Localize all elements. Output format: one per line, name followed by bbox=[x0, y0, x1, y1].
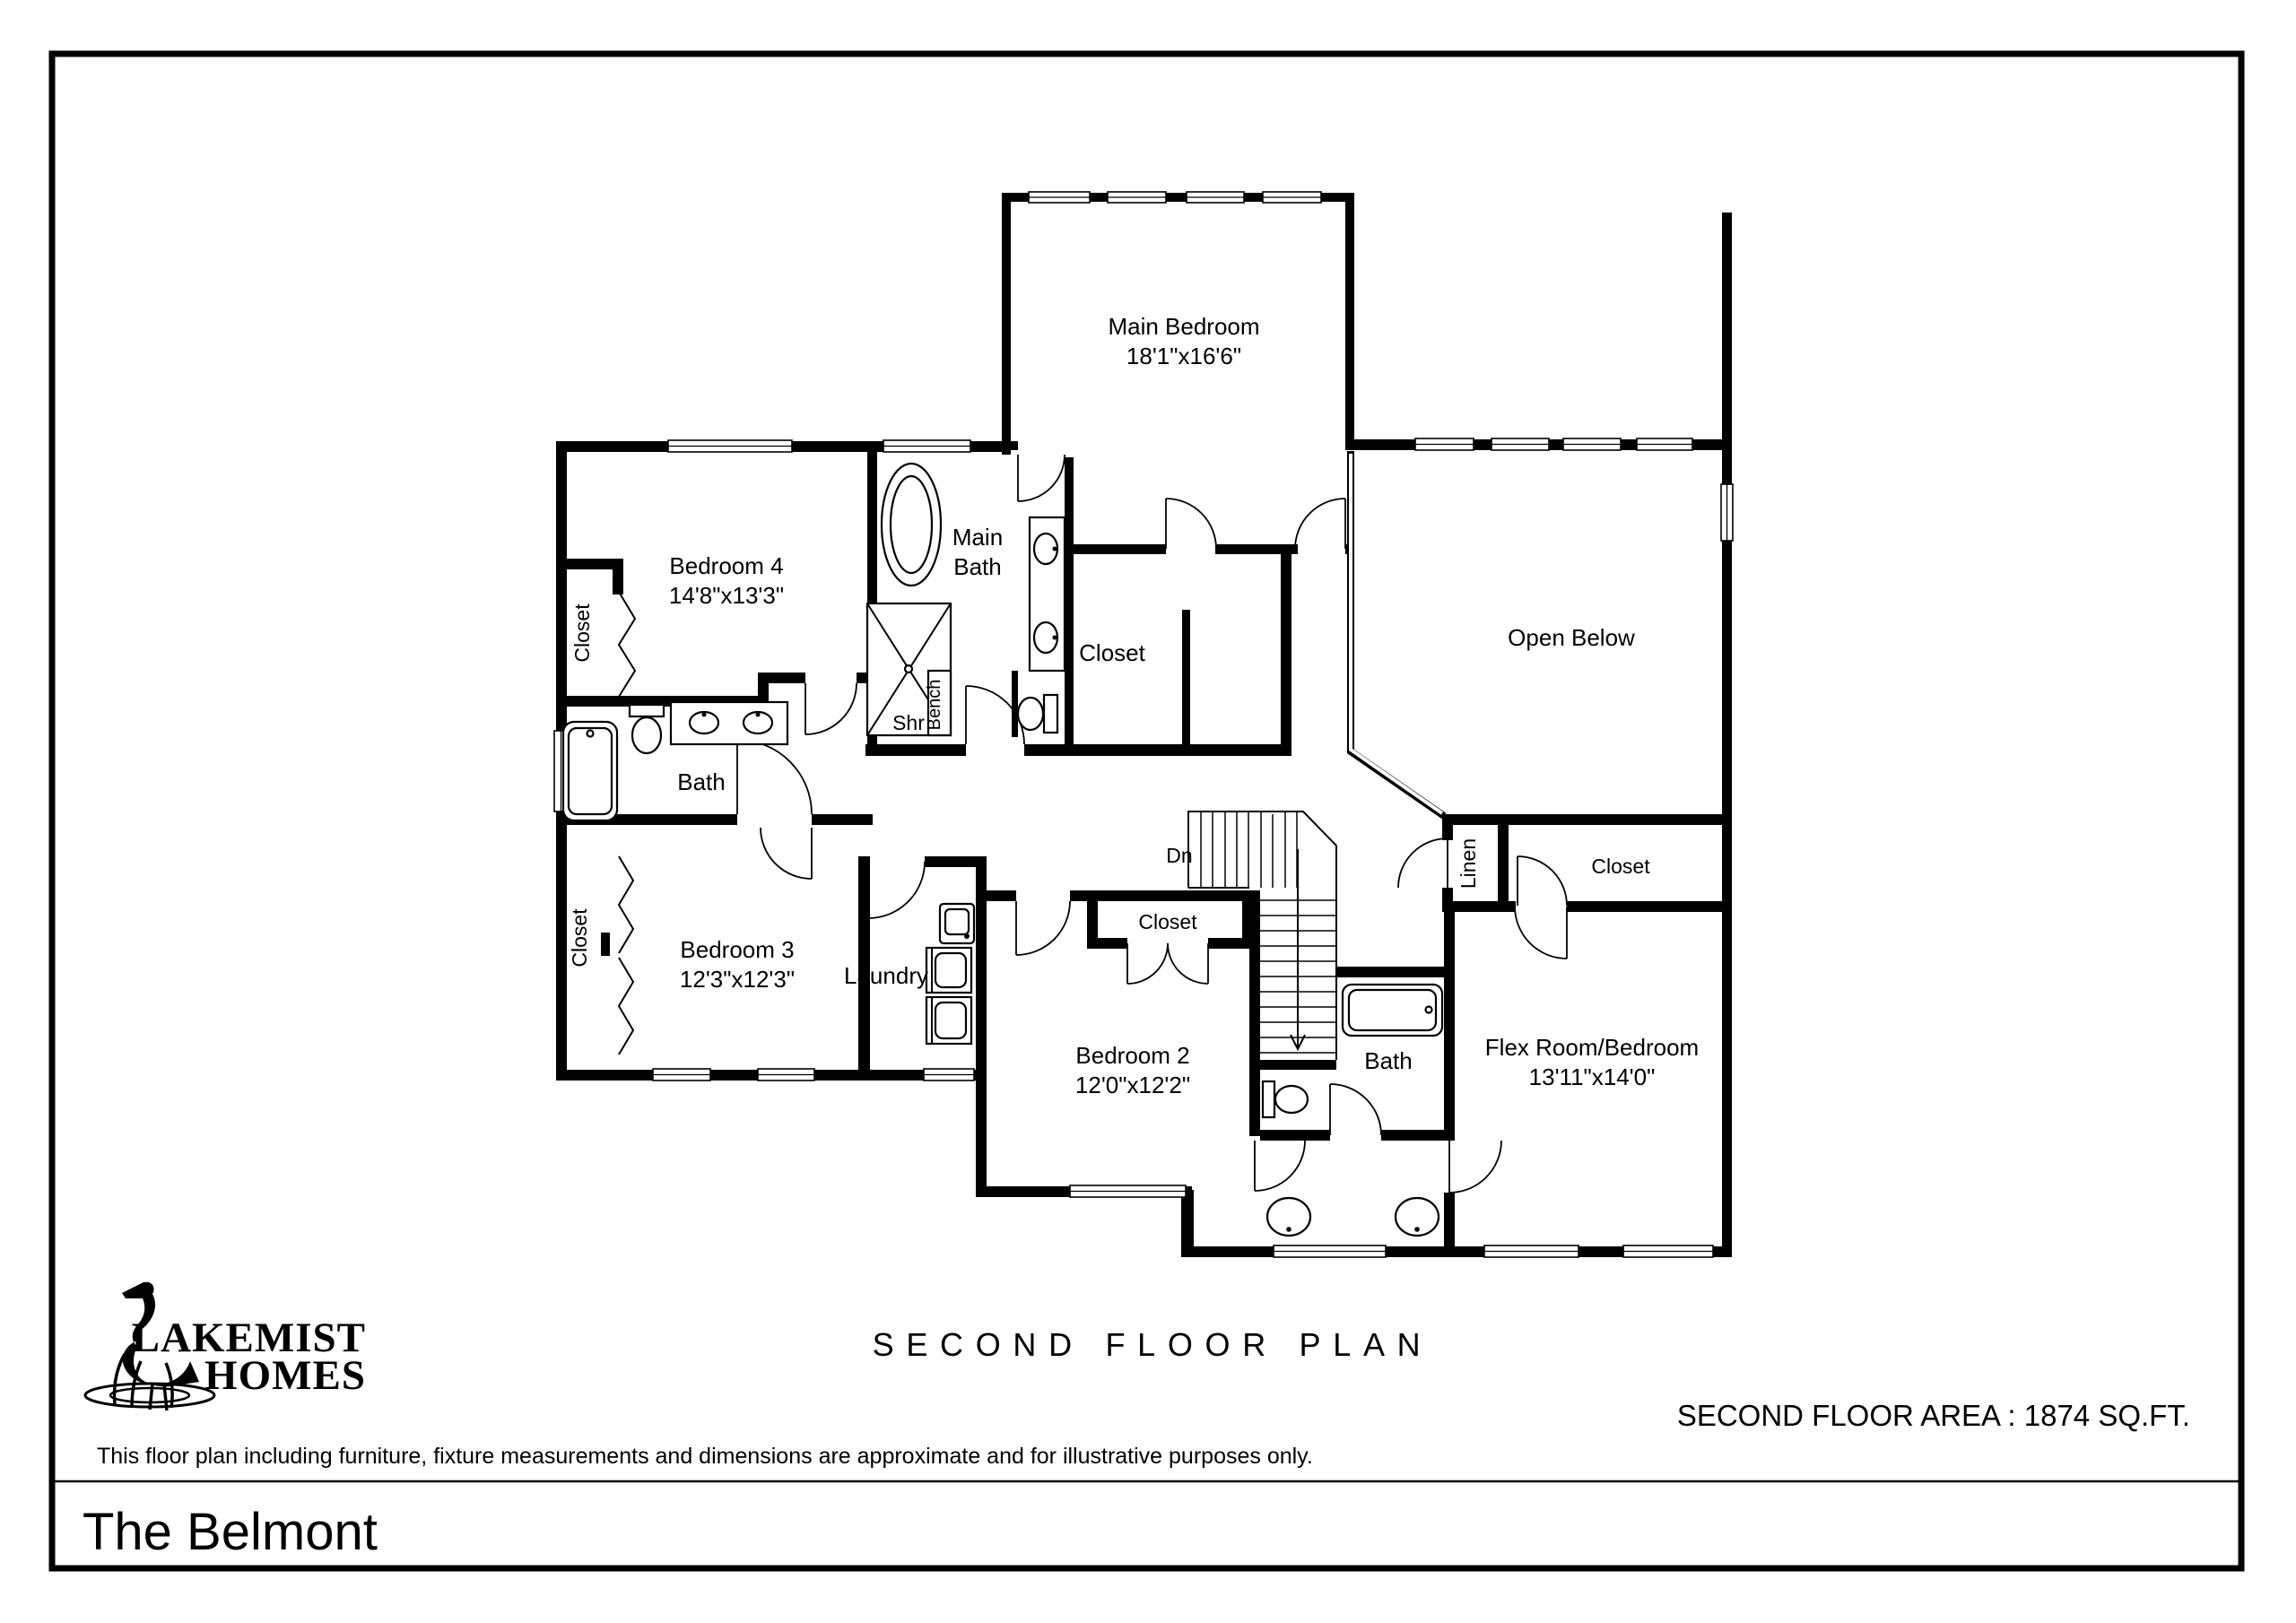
window bbox=[668, 440, 792, 452]
bench-label: Bench bbox=[925, 680, 944, 731]
open-below-label: Open Below bbox=[1508, 624, 1635, 651]
plan-title: SECOND FLOOR PLAN bbox=[873, 1326, 1433, 1363]
window bbox=[883, 440, 970, 452]
bedroom3-dims: 12'3"x12'3" bbox=[680, 966, 795, 993]
fixtures bbox=[563, 464, 1442, 1236]
window bbox=[1637, 438, 1692, 450]
main-bedroom-label: Main Bedroom bbox=[1108, 313, 1259, 340]
floor-plan-sheet: Main Bedroom 18'1"x16'6" Bedroom 4 14'8"… bbox=[0, 0, 2296, 1623]
window bbox=[1492, 438, 1549, 450]
window bbox=[1563, 438, 1621, 450]
bedroom4-closet-label: Closet bbox=[570, 603, 594, 663]
window bbox=[1070, 1185, 1186, 1197]
main-bath-label-line2: Bath bbox=[953, 553, 1002, 580]
bedroom4-closet-bifold bbox=[619, 592, 635, 697]
center-bath-label: Bath bbox=[1364, 1047, 1413, 1074]
left-bath-label: Bath bbox=[677, 768, 726, 795]
floor-area-text: SECOND FLOOR AREA : 1874 SQ.FT. bbox=[1677, 1399, 2190, 1432]
staircase bbox=[1188, 811, 1336, 1060]
laundry-washer bbox=[926, 948, 971, 993]
bedroom3-closet-label: Closet bbox=[568, 908, 591, 968]
shared-vanity-sinks bbox=[1267, 1198, 1439, 1236]
window bbox=[1187, 192, 1244, 203]
flex-closet-label: Closet bbox=[1591, 855, 1650, 878]
bedroom2-dims: 12'0"x12'2" bbox=[1075, 1072, 1190, 1098]
window bbox=[1415, 438, 1474, 450]
stairs-down-label: Dn bbox=[1166, 844, 1192, 867]
laundry-label: Laundry bbox=[844, 962, 928, 989]
bedroom4-label: Bedroom 4 bbox=[669, 552, 783, 579]
bedroom2-label: Bedroom 2 bbox=[1075, 1042, 1189, 1069]
lakemist-logo: LAKEMIST HOMES bbox=[85, 1282, 366, 1410]
center-bath-tub bbox=[1343, 985, 1442, 1036]
main-bath-tub bbox=[882, 464, 941, 586]
flex-room-label: Flex Room/Bedroom bbox=[1485, 1034, 1699, 1061]
left-bath-tub bbox=[563, 722, 617, 820]
window bbox=[653, 1069, 710, 1081]
main-bath-toilet bbox=[1018, 695, 1057, 733]
left-bath-toilet bbox=[630, 705, 664, 753]
main-bath-vanity bbox=[1030, 517, 1065, 671]
window bbox=[1263, 192, 1321, 203]
bedroom3-closet-bifold-lower bbox=[619, 958, 633, 1055]
shower-label: Shr bbox=[892, 711, 925, 734]
bedroom4-dims: 14'8"x13'3" bbox=[669, 582, 784, 609]
main-closet-label: Closet bbox=[1079, 639, 1145, 666]
window bbox=[1721, 484, 1733, 541]
brand-name-line2: HOMES bbox=[204, 1352, 366, 1399]
stair-direction-arrow bbox=[1291, 849, 1305, 1049]
linen-label: Linen bbox=[1457, 838, 1480, 889]
main-bath-label-line1: Main bbox=[952, 524, 1003, 551]
open-below-railing bbox=[1351, 451, 1444, 816]
window bbox=[924, 1069, 974, 1081]
window bbox=[1484, 1245, 1578, 1257]
laundry-dryer bbox=[926, 997, 971, 1044]
model-name: The Belmont bbox=[83, 1503, 378, 1561]
window bbox=[1108, 192, 1166, 203]
window bbox=[1029, 192, 1090, 203]
bedroom3-label: Bedroom 3 bbox=[680, 936, 794, 963]
window bbox=[758, 1069, 814, 1081]
center-bath-toilet bbox=[1263, 1081, 1308, 1117]
bedroom3-closet-bifold-upper bbox=[619, 856, 633, 953]
window bbox=[1274, 1245, 1386, 1257]
main-bedroom-dims: 18'1"x16'6" bbox=[1126, 343, 1241, 369]
flex-room-dims: 13'11"x14'0" bbox=[1529, 1063, 1656, 1090]
laundry-sink bbox=[940, 904, 974, 943]
left-bath-vanity bbox=[671, 702, 787, 744]
window bbox=[1623, 1245, 1713, 1257]
disclaimer-text: This floor plan including furniture, fix… bbox=[97, 1444, 1313, 1469]
bedroom2-closet-label: Closet bbox=[1138, 910, 1197, 933]
